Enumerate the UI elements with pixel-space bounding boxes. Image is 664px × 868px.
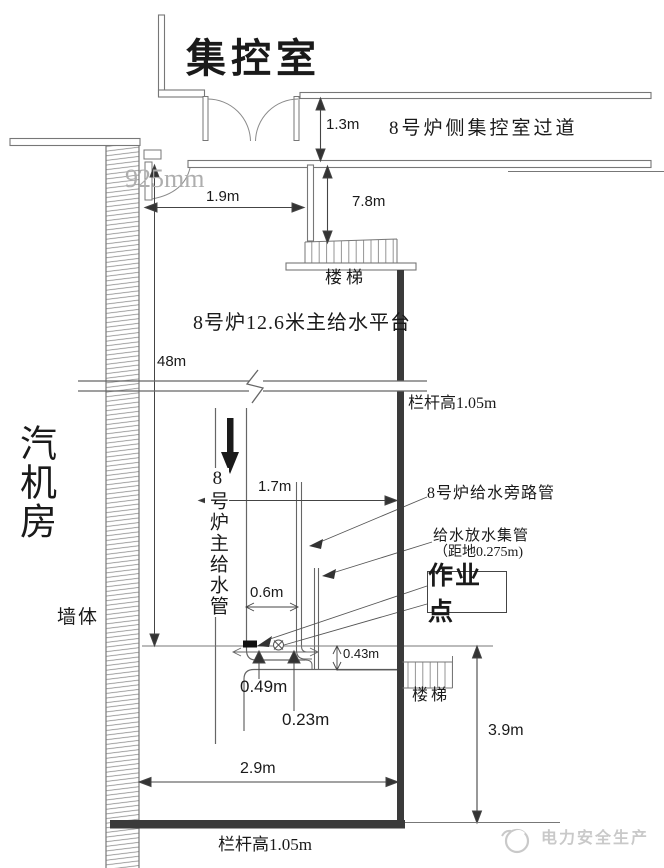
- callout-0-23: [288, 651, 300, 711]
- dim-7-8-label: 7.8m: [352, 193, 385, 210]
- stairs-lower-label: 楼梯: [412, 687, 450, 705]
- dim-0-6: [246, 603, 298, 611]
- gray-925mm-label: 925mm: [125, 164, 204, 194]
- bypass-pipe: [297, 482, 313, 659]
- watermark-label: 电力安全生产: [541, 830, 649, 848]
- corridor-label: 8号炉侧集控室过道: [389, 118, 578, 140]
- work-point-marker: [243, 641, 257, 648]
- dim-0-6-label: 0.6m: [250, 584, 283, 601]
- dim-0-43-label: 0.43m: [343, 647, 379, 662]
- flow-arrow-icon: [227, 418, 234, 453]
- dim-1-7-label: 1.7m: [258, 478, 291, 495]
- turbine-hall-label: 汽机房: [12, 424, 55, 541]
- railing-upper-label: 栏杆高1.05m: [408, 395, 496, 413]
- main-pipe-label: 8号炉主给水管: [205, 468, 229, 617]
- platform-label: 8号炉12.6米主给水平台: [193, 312, 411, 335]
- leader-lines: [270, 497, 432, 645]
- door-swing-right-icon: [256, 99, 299, 141]
- dim-1-3-label: 1.3m: [326, 116, 359, 133]
- dim-1-9-label: 1.9m: [206, 188, 239, 205]
- leader-arrowhead-icon: [257, 636, 272, 647]
- railing-lower-label: 栏杆高1.05m: [218, 835, 312, 855]
- upper-stairs: [286, 239, 416, 270]
- dim-3-9-label: 3.9m: [488, 722, 524, 740]
- leader-arrowhead-icon: [309, 539, 323, 549]
- break-symbol-icon: [247, 370, 263, 403]
- watermark-logo-icon: [502, 830, 528, 852]
- door-swing-left-icon: [208, 99, 251, 141]
- work-point-label: 作业点: [428, 556, 506, 628]
- dim-2-9: [139, 778, 398, 787]
- bypass-pipe-label: 8号炉给水旁路管: [427, 485, 555, 503]
- dim-925-vertical: [150, 165, 159, 646]
- dim-1-3: [316, 98, 325, 161]
- control-room-label: 集控室: [186, 36, 321, 82]
- dim-0-23-label: 0.23m: [282, 710, 329, 730]
- leader-arrowhead-icon: [322, 569, 336, 579]
- callout-0-49: [253, 651, 265, 679]
- wall-label: 墙体: [57, 607, 99, 629]
- drain-header-pipe: [315, 568, 319, 670]
- dim-2-9-label: 2.9m: [240, 760, 276, 778]
- lower-stairs: [403, 656, 453, 688]
- dim-48m-label: 48m: [157, 353, 186, 370]
- floor-bar: [110, 820, 405, 829]
- dim-0-49-label: 0.49m: [240, 677, 287, 697]
- drain-header-label: 给水放水集管: [433, 528, 529, 545]
- engineering-diagram: 集控室 8号炉侧集控室过道 1.3m 925mm 1.9m 7.8m 楼梯 8号…: [0, 0, 664, 868]
- dim-3-9: [473, 646, 482, 823]
- stairs-upper-label: 楼梯: [325, 268, 367, 288]
- dim-7-8: [323, 166, 332, 243]
- work-point-detail: [142, 636, 493, 656]
- railing-bar-lower: [397, 391, 404, 821]
- work-point-box: 作业点: [427, 571, 507, 613]
